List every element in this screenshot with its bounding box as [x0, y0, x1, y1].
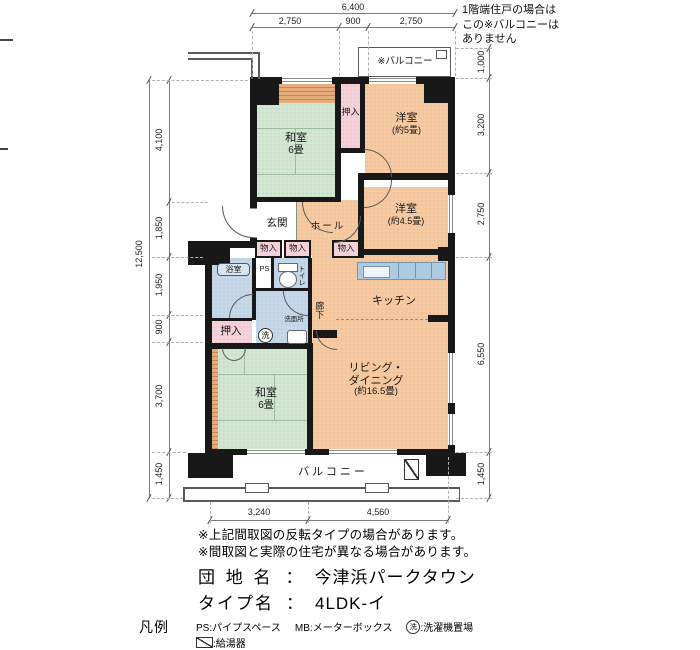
dim-bottom-seg: 3,240: [234, 507, 284, 517]
ext-line: [456, 257, 492, 258]
wall: [426, 453, 466, 476]
dim-top-seg: 2,750: [389, 16, 433, 26]
wall: [205, 318, 252, 321]
toilet-bowl-icon: [279, 271, 297, 288]
living-label: リビング・ ダイニング (約16.5畳): [330, 362, 422, 398]
dim-left-seg: 1,450: [154, 452, 164, 496]
kitchen-living-divider: [336, 319, 428, 320]
water-heater-legend-icon: [196, 637, 213, 648]
room-kitchen-living: [312, 255, 448, 449]
room-size: 6畳: [257, 145, 335, 157]
danchi-name-row: 団 地 名 ： 今津浜パークタウン: [198, 563, 476, 588]
ext-line: [210, 502, 211, 523]
legend-row-2: :給湯器: [196, 635, 246, 650]
dim-top-seg: 900: [336, 16, 370, 26]
railing-notch: [365, 483, 389, 493]
dim-right-seg: 6,550: [476, 332, 486, 376]
edge-mark: [0, 39, 13, 41]
corridor-outline: [188, 52, 260, 54]
note-line: この※バルコニーは: [462, 18, 582, 33]
type-name-row: タイプ名 ： 4LDK-イ: [198, 589, 386, 614]
balcony-railing: [183, 500, 460, 502]
wall: [438, 247, 455, 261]
mono1-label: 物入: [255, 244, 282, 254]
ext-line: [152, 498, 183, 499]
dim-right-seg: 3,200: [476, 103, 486, 147]
ext-line: [368, 31, 369, 76]
dim-right-seg: 2,750: [476, 192, 486, 236]
room-size: (約5畳): [365, 125, 448, 135]
dim-line: [169, 80, 170, 498]
dim-top-total: 6,400: [327, 2, 379, 12]
tatami-line: [218, 374, 307, 375]
wash-circle-char: 洗: [410, 622, 417, 632]
washing-machine-icon: 洗: [258, 328, 273, 343]
ext-line: [152, 80, 248, 81]
dim-line: [252, 13, 455, 14]
ext-line: [456, 498, 492, 499]
ext-line: [172, 202, 208, 203]
ext-line: [339, 31, 340, 76]
ext-line: [152, 342, 203, 343]
wall: [338, 148, 365, 153]
corridor-outline: [188, 58, 252, 60]
ext-line: [152, 452, 186, 453]
danchi-value: 今津浜パークタウン: [314, 563, 475, 588]
legend-wash-text: :洗濯機置場: [420, 619, 473, 634]
window: [448, 195, 455, 233]
dim-left-seg: 4,100: [154, 118, 164, 162]
counter-divider: [398, 262, 399, 278]
wall: [307, 349, 313, 449]
window: [282, 77, 332, 84]
type-value: 4LDK-イ: [315, 589, 386, 614]
legend-mb: MB:メーターボックス: [295, 619, 392, 634]
mono3-label: 物入: [332, 244, 360, 254]
hall-label: ホール: [299, 222, 357, 233]
door-arc-entrance: [222, 206, 253, 238]
yokushitsu-label: 浴室: [217, 263, 250, 276]
counter-divider: [415, 262, 416, 278]
tatami-line: [257, 128, 335, 129]
dim-top-seg: 2,750: [268, 16, 312, 26]
tatami-line: [218, 420, 307, 421]
rouka-label: 廊下: [314, 296, 324, 324]
room-size: (約4.5畳): [364, 216, 448, 226]
footer-note-2: ※間取図と実際の住宅が異なる場合があります。: [198, 541, 476, 560]
window: [448, 353, 455, 403]
engawa-top: [279, 84, 335, 103]
dim-left-seg: 3,700: [154, 374, 164, 418]
dim-left-seg: 1,950: [154, 263, 164, 307]
ext-line: [456, 48, 492, 49]
legend-wash-item: 洗 :洗濯機置場: [406, 619, 473, 634]
floorplan-page: ※バルコニー 洗 和室 6畳 押入 洋室 (約5畳) 洋室 (約4.5畳) 玄関…: [0, 0, 700, 650]
ext-line: [308, 502, 309, 523]
ext-line: [456, 78, 492, 79]
legend-heater-text: :給湯器: [213, 635, 246, 650]
window: [329, 449, 397, 455]
dim-left-total: 12,500: [134, 229, 144, 279]
note-line: 1階端住戸の場合は: [462, 3, 582, 18]
dim-line: [489, 48, 490, 498]
room-name: 洋室: [364, 203, 448, 216]
corridor-outline: [258, 52, 260, 79]
oshiire-top-label: 押入: [337, 107, 364, 117]
washitsu-top-label: 和室 6畳: [257, 132, 335, 156]
genkan-label: 玄関: [257, 217, 297, 229]
wall: [188, 453, 233, 478]
dim-right-seg: 1,450: [476, 452, 486, 496]
window: [448, 414, 455, 445]
dim-line: [210, 520, 448, 521]
tatami-line: [257, 174, 335, 175]
kitchen-label: キッチン: [366, 295, 422, 308]
wall: [308, 258, 312, 349]
room-size: 6畳: [240, 400, 292, 412]
ext-line: [456, 452, 492, 453]
mono2-label: 物入: [284, 244, 311, 254]
type-label: タイプ名: [198, 589, 274, 614]
counter-divider: [431, 262, 432, 278]
kitchen-sink: [363, 266, 390, 278]
legend-row-1: PS:パイプスペース MB:メーターボックス 洗 :洗濯機置場: [196, 619, 473, 634]
oshiire-mid-label: 押入: [214, 325, 248, 337]
dim-tick: [452, 23, 457, 31]
wall: [250, 77, 279, 105]
toilet-label: トイレ: [297, 260, 305, 290]
wall: [360, 249, 448, 255]
danchi-colon: ：: [285, 563, 302, 588]
legend-ps: PS:パイプスペース: [196, 619, 281, 634]
dim-line: [252, 27, 455, 28]
edge-mark: [0, 148, 8, 150]
water-heater-icon: [404, 459, 419, 480]
dim-tick: [452, 9, 457, 17]
senmenjo-label: 洗面所: [280, 316, 308, 323]
window: [369, 77, 416, 84]
ext-line: [152, 315, 203, 316]
ext-line: [252, 31, 253, 76]
wall: [250, 105, 257, 208]
balcony-railing: [183, 487, 185, 501]
ps-label: PS: [256, 265, 273, 274]
sink-icon: [287, 330, 307, 344]
living-size: (約16.5畳): [330, 387, 422, 398]
ext-line: [456, 173, 492, 174]
ext-line: [152, 257, 203, 258]
room-name: 洋室: [365, 112, 448, 125]
washitsu-bottom-label: 和室 6畳: [240, 387, 292, 411]
washing-machine-label: 洗: [262, 330, 270, 341]
wall: [271, 258, 274, 291]
ext-line: [448, 457, 449, 523]
balcony-top-label: ※バルコニー: [366, 57, 444, 68]
room-name: 和室: [257, 132, 335, 145]
dim-left-seg: 1,850: [154, 206, 164, 250]
wall: [428, 315, 450, 322]
ext-line: [455, 31, 456, 76]
danchi-label: 団 地 名: [198, 563, 273, 588]
living-line1: リビング・: [330, 362, 422, 375]
wall: [335, 84, 341, 202]
room-name: 和室: [240, 387, 292, 400]
dim-bottom-seg: 4,560: [353, 507, 403, 517]
type-colon: ：: [286, 589, 303, 614]
dim-line: [149, 80, 150, 498]
yoshitsu45-label: 洋室 (約4.5畳): [364, 203, 448, 226]
dim-tick: [146, 494, 151, 502]
window: [247, 449, 305, 455]
legend-title: 凡例: [139, 617, 169, 637]
yoshitsu5-label: 洋室 (約5畳): [365, 112, 448, 135]
railing-notch: [245, 483, 269, 493]
balcony-bottom-label: バルコニー: [288, 466, 378, 479]
balcony-railing: [183, 487, 460, 489]
wash-circle-icon: 洗: [406, 620, 420, 634]
